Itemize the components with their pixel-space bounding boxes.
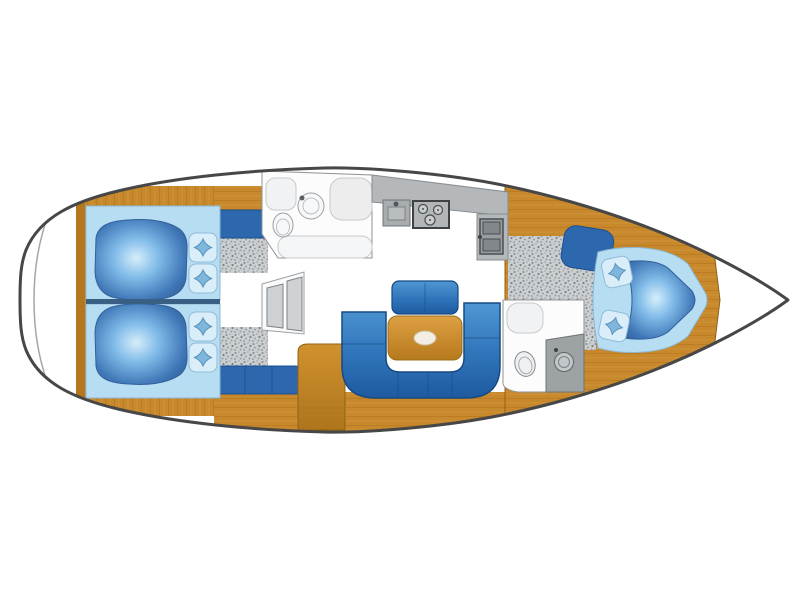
forward-head-washbasin: [555, 353, 574, 372]
galley-double-sink: [478, 219, 503, 254]
step-tread: [287, 277, 302, 331]
pillow: [189, 233, 217, 262]
pillow: [189, 312, 217, 341]
floor-plan-svg: [0, 0, 800, 600]
forward-head-shower: [507, 303, 543, 333]
nav-bench: [218, 366, 300, 394]
pillow: [597, 309, 630, 343]
aft-starboard-duvet: [95, 304, 187, 385]
aft-head-toilet: [273, 213, 293, 237]
aft-head-vanity: [278, 236, 372, 258]
salon-table-inlay: [414, 331, 436, 345]
step-tread: [267, 284, 283, 328]
pillow: [600, 255, 633, 289]
aft-bulkhead: [76, 188, 85, 416]
aft-head-washbasin: [298, 193, 324, 219]
aft-head: [262, 171, 372, 258]
nav-desk: [298, 344, 345, 430]
forward-head: [503, 300, 584, 392]
aft-head-shower: [266, 178, 296, 210]
aft-beds-seam: [86, 299, 220, 304]
aft-head-counter: [330, 178, 372, 220]
aft-cabin-port: [86, 206, 220, 300]
pillow: [189, 264, 217, 293]
carpet-aft-starboard: [217, 327, 268, 367]
aft-port-foot-cushion: [218, 210, 268, 238]
carpet-aft-port: [217, 237, 268, 273]
aft-cabin-starboard: [86, 304, 220, 398]
pillow: [189, 343, 217, 372]
galley-sink: [383, 200, 410, 226]
forward-head-counter: [546, 334, 584, 392]
galley-stove-3-burner: [413, 201, 449, 228]
yacht-floor-plan: [0, 0, 800, 600]
aft-port-duvet: [95, 220, 187, 301]
